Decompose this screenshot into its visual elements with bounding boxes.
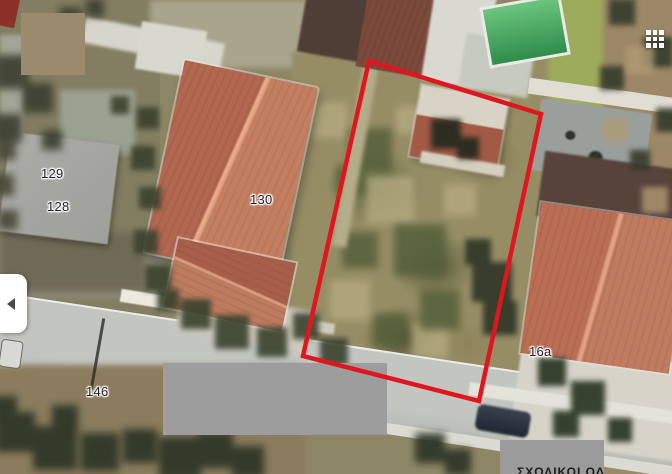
address-label-16a: 16a [529,344,552,359]
address-label-146: 146 [86,384,109,399]
address-label-128: 128 [47,199,70,214]
car-white-left [0,339,24,370]
bottom-clipped-text: ΣΧΟΛΙΚΟΙ ΟΔ [517,465,627,474]
side-panel-collapse-button[interactable] [0,274,27,333]
apps-grid-icon[interactable] [646,30,664,49]
chevron-left-icon [7,298,15,310]
redaction-box-bottom-center [163,363,387,435]
redaction-box-top-left [21,13,85,75]
building-gray-roof [0,132,120,245]
satellite-map-canvas[interactable]: 129 128 130 146 16a ΣΧΟΛΙΚΟΙ ΟΔ [0,0,672,474]
address-label-129: 129 [41,166,64,181]
address-label-130: 130 [250,192,273,207]
roof-top-left-corner [0,0,21,28]
